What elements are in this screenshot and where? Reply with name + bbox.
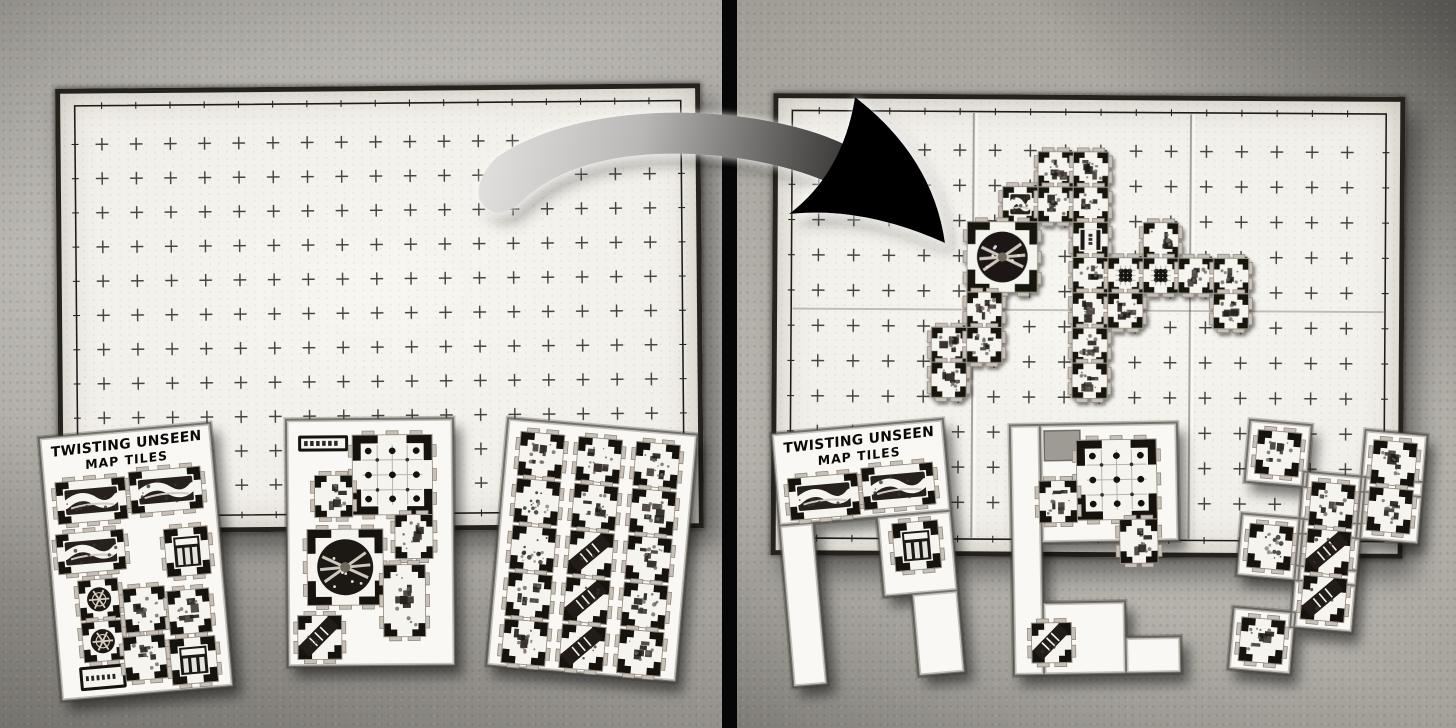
tile-sheet-left-3 [487,418,698,682]
map-tile [1068,289,1111,332]
map-tile [159,521,216,581]
map-tile [1234,612,1290,668]
map-tile [1242,519,1298,575]
map-tile [624,484,680,540]
tile-sheet-right-1-cut: TWISTING UNSEEN MAP TILES [771,419,964,685]
tile-sheet-art [771,419,964,685]
map-tile [79,663,127,691]
map-tile [165,631,224,690]
map-tile [1072,435,1162,525]
map-tile [1139,219,1182,262]
map-tile [963,288,1006,331]
map-tile [51,525,131,579]
map-tile [348,430,437,519]
map-tile [1209,290,1252,333]
map-tile [1115,515,1162,568]
map-tile [1139,254,1182,297]
map-tile [562,526,618,582]
map-tile [927,323,970,366]
map-tile [73,573,125,625]
tile-sheet-right-2-cut [1010,423,1181,676]
map-tile [1068,324,1111,367]
tile-sheet-art [487,418,698,682]
map-tile [963,323,1006,366]
map-tile [567,479,623,535]
tile-sheet-art [1010,423,1181,676]
map-tile [1069,218,1112,261]
map-tile [620,531,676,587]
map-tile [616,578,672,634]
map-tile [856,458,940,515]
map-tile [1362,482,1418,538]
map-tile [118,629,172,685]
map-tile [612,624,668,680]
tile-sheet-art [286,418,455,666]
map-tile [1027,618,1076,667]
map-tile [1069,148,1112,191]
map-tile [1250,425,1306,481]
map-tile [1296,571,1352,627]
map-tile [927,358,970,401]
map-tile [509,474,565,530]
map-tile [1300,524,1356,580]
map-tile [1174,254,1217,297]
map-tile [303,525,388,610]
map-tile [1366,435,1422,491]
map-tile [963,218,1042,297]
map-tile [379,560,430,640]
tile-sheet-left-2 [286,418,455,666]
map-tile [391,510,437,562]
tile-sheet-left-1: TWISTING UNSEEN MAP TILES [39,423,233,701]
map-tile [513,427,569,483]
map-tile [783,468,865,525]
map-tile [554,619,610,675]
map-tile [628,437,684,493]
map-tile [1035,476,1082,527]
map-tile [1069,183,1112,226]
tile-sheet-art [1221,416,1432,684]
map-tile [505,521,561,577]
map-tile [162,583,216,639]
scene-map-tiles-demo: TWISTING UNSEEN MAP TILES TWISTING UNSEE… [0,0,1456,728]
map-tile [50,472,132,529]
map-tile [1068,359,1111,402]
map-tile [558,573,614,629]
map-tile [298,435,348,451]
panel-divider [722,0,737,728]
map-tile [294,611,346,663]
map-tile [501,567,557,623]
tile-sheet-art [39,423,233,701]
map-tile [1034,148,1077,191]
map-tile [887,515,946,575]
map-tile [1209,254,1252,297]
map-tile [1069,253,1112,296]
map-tile [571,432,627,488]
map-tile [310,471,356,521]
right-panel-after: TWISTING UNSEEN MAP TILES [737,0,1456,728]
map-tile [1104,254,1147,297]
tile-sheet-right-3-cut [1221,416,1432,684]
left-panel-before: TWISTING UNSEEN MAP TILES [0,0,722,728]
map-tile [1304,477,1360,533]
map-tile [124,462,208,519]
map-tile [1104,289,1147,332]
map-tile [1034,183,1077,226]
map-tile [497,614,553,670]
